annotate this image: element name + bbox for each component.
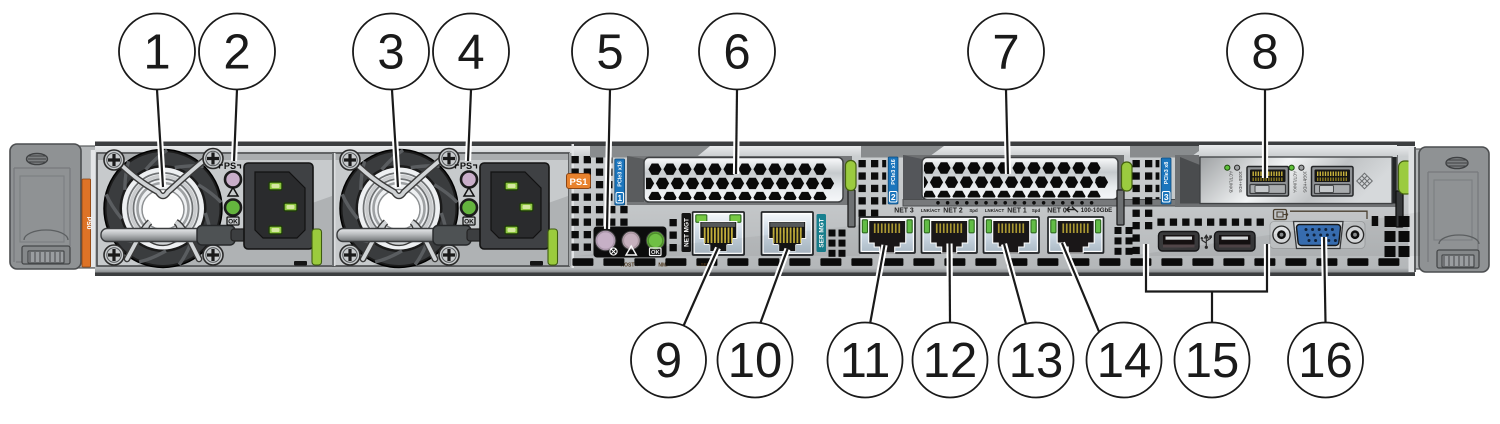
svg-text:PS: PS [460,161,472,171]
svg-text:PCIe3 x16: PCIe3 x16 [891,159,897,184]
svg-text:13: 13 [1009,334,1064,388]
svg-text:NET MGT: NET MGT [684,218,691,247]
svg-text:9: 9 [655,334,682,388]
svg-text:Spd: Spd [969,208,978,213]
svg-text:ACT/LINKB: ACT/LINKB [1228,171,1233,193]
svg-text:2: 2 [891,192,896,202]
svg-text:LNK/ACT: LNK/ACT [921,208,941,213]
svg-text:Spd: Spd [1032,208,1041,213]
svg-text:1: 1 [143,26,170,80]
svg-text:11: 11 [840,334,891,388]
svg-text:PCIe3 x16: PCIe3 x16 [618,161,624,186]
svg-text:12: 12 [923,334,978,388]
svg-text:LNK/ACT: LNK/ACT [985,208,1005,213]
svg-text:PS: PS [224,161,236,171]
svg-text:OK: OK [228,219,238,226]
svg-text:1: 1 [617,193,622,203]
svg-text:PS0: PS0 [85,217,92,230]
svg-text:NET 3: NET 3 [894,208,914,215]
svg-text:15: 15 [1185,334,1240,388]
svg-text:16: 16 [1298,334,1353,388]
svg-text:NET 1: NET 1 [1007,208,1027,215]
svg-text:OK: OK [464,219,474,226]
svg-text:3: 3 [377,26,404,80]
svg-text:ACT/LINKA: ACT/LINKA [1293,171,1298,193]
svg-text:4: 4 [457,26,484,80]
svg-text:10: 10 [728,334,783,388]
svg-text:10Gb+HDS: 10Gb+HDS [1302,171,1307,193]
svg-text:3: 3 [1164,192,1169,202]
svg-text:5: 5 [596,26,623,80]
svg-text:PS1: PS1 [570,177,589,188]
svg-text:10Gb+HDS: 10Gb+HDS [1238,171,1243,193]
svg-text:NET 2: NET 2 [943,208,963,215]
svg-text:8: 8 [1251,26,1278,80]
svg-text:NET 0: NET 0 [1047,208,1067,215]
svg-text:PCIe3 x8: PCIe3 x8 [1164,162,1170,184]
svg-text:6: 6 [723,26,750,80]
svg-text:100-10GbE: 100-10GbE [1081,207,1113,214]
svg-text:2: 2 [223,26,250,80]
svg-text:7: 7 [992,26,1019,80]
svg-text:14: 14 [1097,334,1152,388]
